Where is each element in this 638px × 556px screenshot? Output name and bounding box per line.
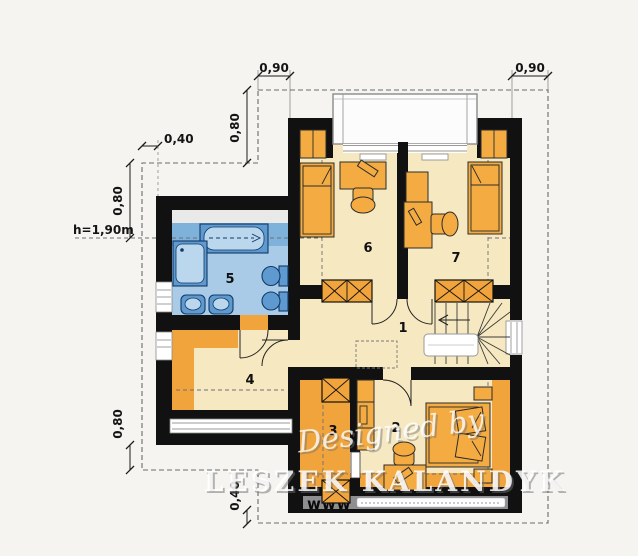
room-7-closet [481,130,507,158]
height-label: h=1,90m [73,223,134,237]
room-4-side-window [156,332,172,360]
room-6-sill-shelf [360,154,386,160]
room-7-sill-shelf [422,154,448,160]
chimney-shaft [322,280,372,302]
chimney-shaft [435,280,493,302]
bidet [262,292,288,311]
room-4-bottom-window [170,419,292,433]
room-7-desk [404,202,432,248]
room-6-closet [300,130,326,158]
svg-text:0,90: 0,90 [515,61,545,75]
room-7-bed [468,162,502,234]
floor-plan-drawing: www [0,0,638,556]
balcony [333,94,477,160]
room-7-chair [431,212,458,236]
chimney-shaft [322,378,350,402]
bathroom-knee-wall [172,210,288,223]
room-label-5: 5 [225,272,234,287]
room-6-chair [351,188,375,213]
room-label-7: 7 [451,251,460,266]
svg-text:0,80: 0,80 [111,409,125,439]
room-6-bed [300,163,334,237]
svg-text:0,80: 0,80 [111,186,125,216]
room-label-4: 4 [245,373,254,388]
svg-text:0,40: 0,40 [164,132,194,146]
watermark-name: LESZEK KALANDYK [204,465,567,498]
room-7-cabinet [406,172,428,202]
bathtub [200,224,268,253]
room-6-desk [340,160,386,189]
shower-tray [173,241,207,286]
stair-window [506,321,522,354]
toilet [262,266,288,286]
room-label-1: 1 [398,321,407,336]
svg-text:0,90: 0,90 [259,61,289,75]
washbasin [181,295,205,314]
floor-plan-scan: www [0,0,638,556]
room-4-floor [194,348,288,410]
svg-text:0,80: 0,80 [228,113,242,143]
balcony-door-mullion [398,142,408,160]
room-2-nightstand [474,387,492,400]
washbasin [209,295,233,314]
room-label-6: 6 [363,241,372,256]
